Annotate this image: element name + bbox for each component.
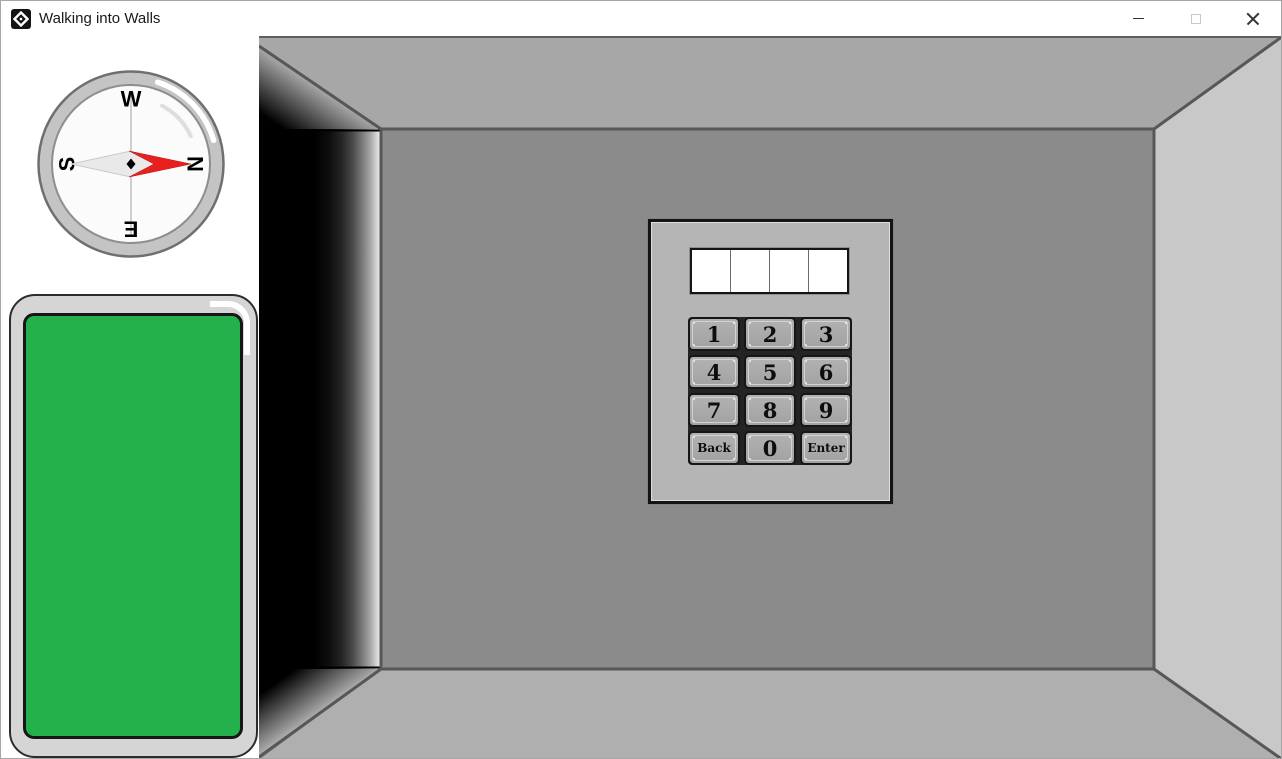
minimize-button[interactable] [1110,1,1167,36]
phone-item[interactable] [9,294,258,758]
keypad-button-6[interactable]: 6 [800,355,852,389]
window-title: Walking into Walls [39,10,160,27]
display-cell-3 [770,250,809,292]
phone-screen [23,313,243,739]
keypad-button-5[interactable]: 5 [744,355,796,389]
maximize-button [1167,1,1224,36]
close-button[interactable] [1224,1,1281,36]
display-cell-1 [692,250,731,292]
close-icon [1246,12,1260,26]
compass-point-east: E [124,217,139,242]
keypad-button-8[interactable]: 8 [744,393,796,427]
app-window: Walking into Walls W N E S [0,0,1282,759]
keypad-button-1[interactable]: 1 [688,317,740,351]
keypad-panel: 1 2 3 4 5 6 7 8 9 Back 0 Enter [648,219,893,504]
keypad-button-0[interactable]: 0 [744,431,796,465]
floor [259,669,1282,759]
keypad-button-7[interactable]: 7 [688,393,740,427]
viewport-top-border [259,36,1282,38]
ceiling [259,36,1282,129]
phone-gloss-highlight [210,301,250,355]
app-icon [11,9,31,29]
keypad-button-2[interactable]: 2 [744,317,796,351]
window-controls [1110,1,1281,36]
keypad-button-3[interactable]: 3 [800,317,852,351]
minimize-icon [1133,18,1144,19]
compass-point-west: W [121,87,142,112]
keypad-buttons: 1 2 3 4 5 6 7 8 9 Back 0 Enter [688,317,852,465]
right-wall[interactable] [1154,36,1282,759]
display-cell-4 [809,250,847,292]
keypad-button-enter[interactable]: Enter [800,431,852,465]
keypad-button-back[interactable]: Back [688,431,740,465]
sidebar: W N E S [1,36,259,759]
compass-arrows-icon [13,11,29,27]
dark-left-passage[interactable] [259,129,381,669]
room-viewport[interactable]: 1 2 3 4 5 6 7 8 9 Back 0 Enter [259,36,1282,759]
keypad-button-4[interactable]: 4 [688,355,740,389]
keypad-display [690,248,849,294]
display-cell-2 [731,250,770,292]
keypad-button-9[interactable]: 9 [800,393,852,427]
compass: W N E S [33,66,229,262]
maximize-icon [1191,14,1201,24]
title-bar: Walking into Walls [1,1,1281,36]
